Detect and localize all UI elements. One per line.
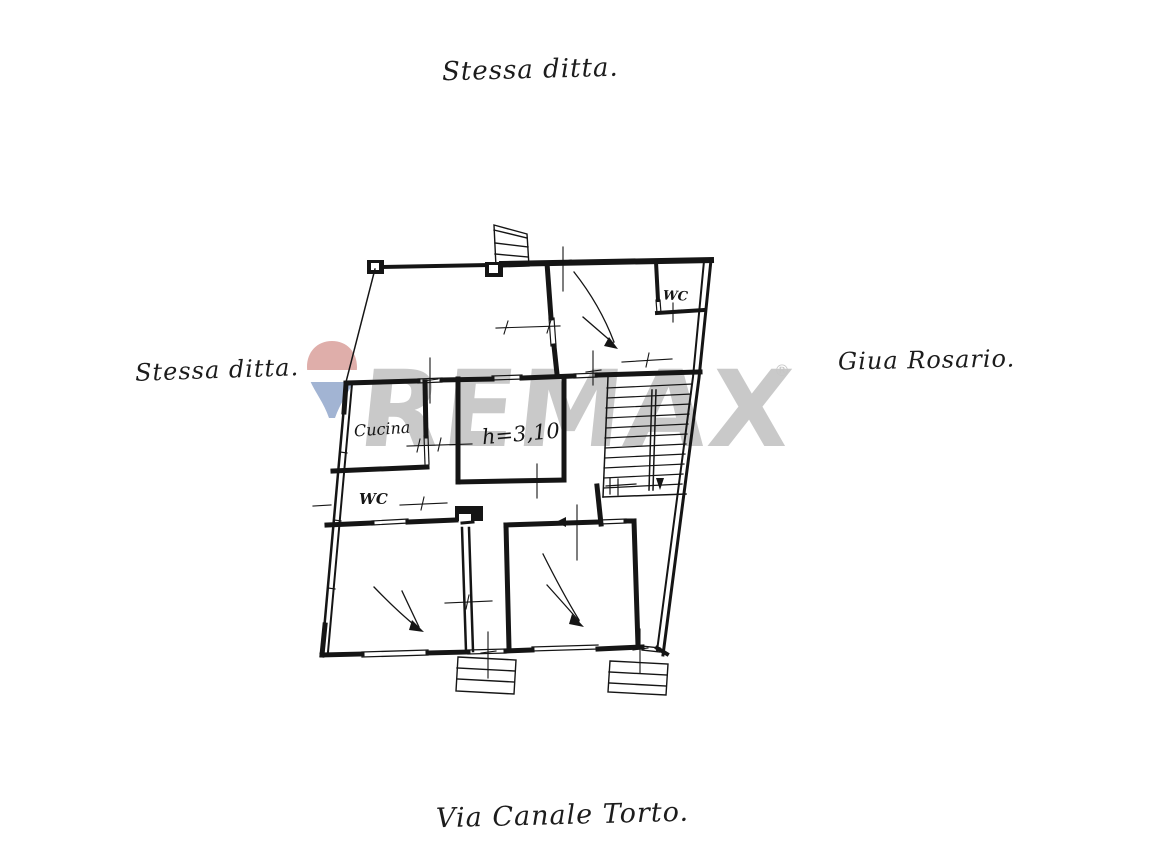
scanned-floor-plan-page: Stessa ditta. Stessa ditta. Giua Rosario… [0, 0, 1168, 864]
annotation-street-bottom: Via Canale Torto. [436, 797, 690, 835]
door-swing-arrows [374, 272, 618, 632]
interior-walls [327, 262, 704, 651]
annotation-neighbor-right: Giua Rosario. [838, 344, 1016, 375]
dimension-ticks [313, 247, 681, 678]
ceiling-height-label: h=3,10 [481, 419, 561, 450]
room-label-kitchen: Cucina [353, 418, 411, 441]
balcony-bottom-left [456, 657, 516, 694]
annotation-neighbor-top: Stessa ditta. [442, 53, 619, 88]
exterior-walls [322, 260, 711, 657]
balcony-bottom-right [608, 661, 668, 695]
floor-plan-drawing: Cucina WC WC h=3,10 [295, 205, 725, 715]
registered-trademark-symbol: ® [774, 361, 790, 380]
annotation-neighbor-left: Stessa ditta. [135, 353, 300, 387]
room-label-wc-left: WC [359, 490, 388, 508]
room-label-wc-top-right: WC [663, 288, 689, 304]
